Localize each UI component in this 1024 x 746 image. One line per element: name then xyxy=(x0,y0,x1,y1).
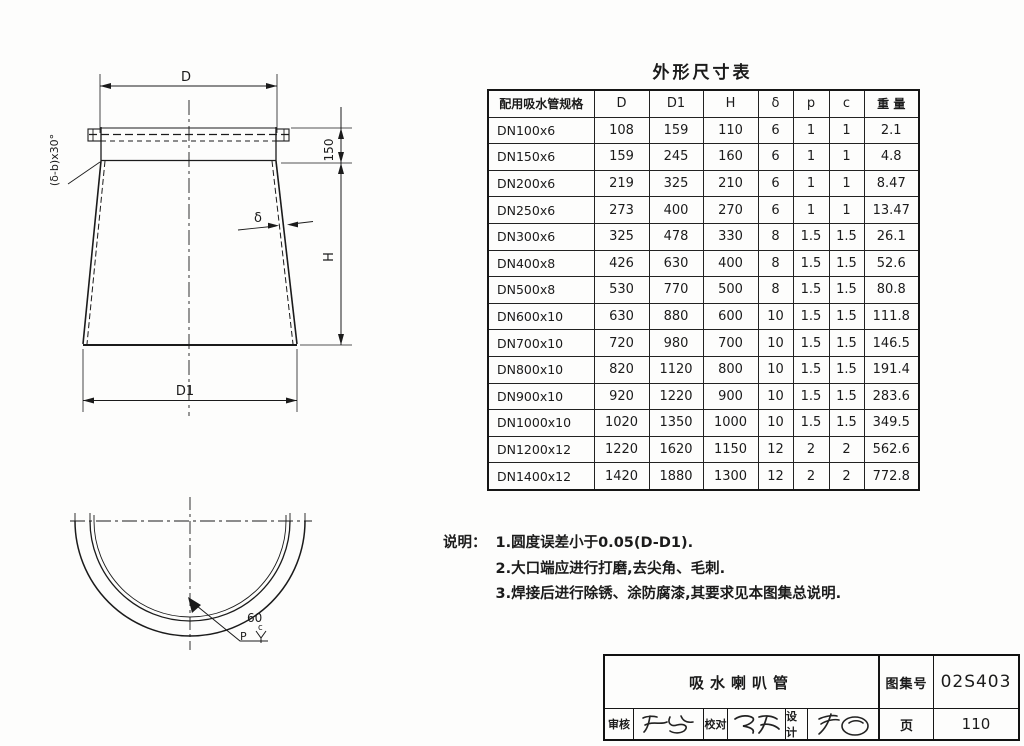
table-cell: 1.5 xyxy=(793,330,829,357)
table-cell: DN600x10 xyxy=(488,303,594,330)
table-cell: 880 xyxy=(649,303,703,330)
table-cell: 1.5 xyxy=(793,410,829,437)
table-cell: 1 xyxy=(793,117,829,144)
table-cell: 111.8 xyxy=(864,303,919,330)
table-cell: 325 xyxy=(594,223,649,250)
table-cell: 1150 xyxy=(703,436,758,463)
table-cell: 400 xyxy=(649,197,703,224)
table-row: DN1000x10102013501000101.51.5349.5 xyxy=(488,410,919,437)
table-cell: 13.47 xyxy=(864,197,919,224)
table-cell: 1 xyxy=(793,144,829,171)
table-cell: 2 xyxy=(793,463,829,490)
page-value: 110 xyxy=(934,709,1018,739)
table-cell: 10 xyxy=(758,303,793,330)
table-row: DN1400x121420188013001222772.8 xyxy=(488,463,919,490)
table-row: DN700x10720980700101.51.5146.5 xyxy=(488,330,919,357)
table-cell: 2 xyxy=(829,463,864,490)
designer-signature xyxy=(808,709,878,739)
title-block: 吸水喇叭管 图集号 02S403 审核 校对 设计 xyxy=(603,654,1020,741)
table-cell: 270 xyxy=(703,197,758,224)
table-cell: 159 xyxy=(649,117,703,144)
reviewer-signature xyxy=(634,709,704,739)
table-cell: 6 xyxy=(758,117,793,144)
table-row: DN100x61081591106112.1 xyxy=(488,117,919,144)
table-cell: 245 xyxy=(649,144,703,171)
table-cell: 8 xyxy=(758,250,793,277)
table-row: DN500x853077050081.51.580.8 xyxy=(488,277,919,304)
table-cell: 1.5 xyxy=(793,303,829,330)
signature-stroke xyxy=(811,711,875,738)
table-cell: DN100x6 xyxy=(488,117,594,144)
table-cell: 10 xyxy=(758,356,793,383)
table-cell: 1.5 xyxy=(829,277,864,304)
table-cell: DN300x6 xyxy=(488,223,594,250)
table-cell: DN1400x12 xyxy=(488,463,594,490)
table-cell: 1.5 xyxy=(829,410,864,437)
table-cell: 1.5 xyxy=(829,303,864,330)
table-cell: DN800x10 xyxy=(488,356,594,383)
table-cell: 273 xyxy=(594,197,649,224)
table-cell: 530 xyxy=(594,277,649,304)
table-cell: 1.5 xyxy=(793,277,829,304)
table-cell: 600 xyxy=(703,303,758,330)
table-cell: 110 xyxy=(703,117,758,144)
dimension-H-label: H xyxy=(322,252,337,262)
table-cell: DN500x8 xyxy=(488,277,594,304)
weld-p-label: P xyxy=(240,630,247,643)
bell-mouth-drawing: D (δ-b)x30° xyxy=(0,0,430,746)
table-cell: 330 xyxy=(703,223,758,250)
column-header-spec: 配用吸水管规格 xyxy=(488,90,594,117)
table-cell: 159 xyxy=(594,144,649,171)
table-cell: 1420 xyxy=(594,463,649,490)
table-cell: 1.5 xyxy=(793,356,829,383)
table-cell: DN1000x10 xyxy=(488,410,594,437)
table-cell: 1 xyxy=(829,144,864,171)
table-cell: 1880 xyxy=(649,463,703,490)
table-cell: 1.5 xyxy=(829,356,864,383)
table-cell: DN700x10 xyxy=(488,330,594,357)
table-cell: 108 xyxy=(594,117,649,144)
column-header-weight: 重 量 xyxy=(864,90,919,117)
note-item-2: 2.大口端应进行打磨,去尖角、毛刺. xyxy=(496,557,842,583)
table-cell: 52.6 xyxy=(864,250,919,277)
signature-stroke xyxy=(637,711,701,737)
page-label: 页 xyxy=(878,709,934,739)
collar-outline xyxy=(88,127,289,161)
column-header-D: D xyxy=(594,90,649,117)
table-cell: 1 xyxy=(793,170,829,197)
table-cell: 1350 xyxy=(649,410,703,437)
table-row: DN800x108201120800101.51.5191.4 xyxy=(488,356,919,383)
drawing-title: 吸水喇叭管 xyxy=(605,656,878,709)
table-cell: 770 xyxy=(649,277,703,304)
table-cell: 1.5 xyxy=(829,223,864,250)
dimension-D-label: D xyxy=(181,70,191,85)
column-header-c: c xyxy=(829,90,864,117)
table-row: DN1200x121220162011501222562.6 xyxy=(488,436,919,463)
table-cell: 1 xyxy=(829,117,864,144)
table-cell: 10 xyxy=(758,330,793,357)
table-cell: 562.6 xyxy=(864,436,919,463)
chamfer-label: (δ-b)x30° xyxy=(48,134,61,186)
table-cell: 1220 xyxy=(594,436,649,463)
table-cell: DN250x6 xyxy=(488,197,594,224)
table-row: DN300x632547833081.51.526.1 xyxy=(488,223,919,250)
table-cell: 8 xyxy=(758,277,793,304)
table-cell: 1020 xyxy=(594,410,649,437)
table-cell: 219 xyxy=(594,170,649,197)
table-cell: 146.5 xyxy=(864,330,919,357)
table-cell: 720 xyxy=(594,330,649,357)
table-cell: 1.5 xyxy=(829,383,864,410)
table-cell: DN900x10 xyxy=(488,383,594,410)
table-cell: 1 xyxy=(793,197,829,224)
table-cell: 630 xyxy=(594,303,649,330)
table-cell: 1.5 xyxy=(793,250,829,277)
table-cell: 772.8 xyxy=(864,463,919,490)
table-cell: DN200x6 xyxy=(488,170,594,197)
table-row: DN150x61592451606114.8 xyxy=(488,144,919,171)
table-row: DN400x842663040081.51.552.6 xyxy=(488,250,919,277)
table-cell: 800 xyxy=(703,356,758,383)
table-cell: 1000 xyxy=(703,410,758,437)
column-header-delta: δ xyxy=(758,90,793,117)
table-cell: 1 xyxy=(829,197,864,224)
table-cell: 900 xyxy=(703,383,758,410)
table-cell: 2.1 xyxy=(864,117,919,144)
table-cell: 426 xyxy=(594,250,649,277)
table-cell: 1.5 xyxy=(829,250,864,277)
table-cell: 4.8 xyxy=(864,144,919,171)
table-cell: 8 xyxy=(758,223,793,250)
table-cell: 630 xyxy=(649,250,703,277)
drawing-sheet: D (δ-b)x30° xyxy=(0,0,1024,746)
cone-outline xyxy=(83,161,297,345)
dimension-D1 xyxy=(83,349,297,412)
table-cell: 12 xyxy=(758,463,793,490)
dimension-D1-label: D1 xyxy=(176,384,194,399)
atlas-number-value: 02S403 xyxy=(934,656,1018,709)
table-cell: 6 xyxy=(758,170,793,197)
table-cell: 80.8 xyxy=(864,277,919,304)
dimension-delta-label: δ xyxy=(254,211,262,226)
table-cell: DN400x8 xyxy=(488,250,594,277)
table-row: DN600x10630880600101.51.5111.8 xyxy=(488,303,919,330)
review-label: 审核 xyxy=(605,709,634,739)
column-header-p: p xyxy=(793,90,829,117)
table-title: 外形尺寸表 xyxy=(487,58,918,83)
notes-label: 说明： xyxy=(443,531,487,608)
table-cell: 1 xyxy=(829,170,864,197)
table-cell: 10 xyxy=(758,383,793,410)
size-table: 配用吸水管规格 D D1 H δ p c 重 量 DN100x610815911… xyxy=(487,89,920,491)
table-cell: 6 xyxy=(758,197,793,224)
table-cell: 210 xyxy=(703,170,758,197)
column-header-H: H xyxy=(703,90,758,117)
table-cell: 400 xyxy=(703,250,758,277)
design-label: 设计 xyxy=(786,709,808,739)
table-cell: 1.5 xyxy=(793,223,829,250)
table-cell: 2 xyxy=(829,436,864,463)
table-cell: DN150x6 xyxy=(488,144,594,171)
table-row: DN250x627340027061113.47 xyxy=(488,197,919,224)
table-row: DN200x62193252106118.47 xyxy=(488,170,919,197)
table-cell: 820 xyxy=(594,356,649,383)
table-cell: 1620 xyxy=(649,436,703,463)
table-cell: 1300 xyxy=(703,463,758,490)
table-cell: 26.1 xyxy=(864,223,919,250)
table-cell: 478 xyxy=(649,223,703,250)
note-item-3: 3.焊接后进行除锈、涂防腐漆,其要求见本图集总说明. xyxy=(496,582,842,608)
table-cell: DN1200x12 xyxy=(488,436,594,463)
note-item-1: 1.圆度误差小于0.05(D-D1). xyxy=(496,531,842,557)
table-cell: 10 xyxy=(758,410,793,437)
checker-signature xyxy=(728,709,786,739)
table-cell: 1120 xyxy=(649,356,703,383)
size-table-header-row: 配用吸水管规格 D D1 H δ p c 重 量 xyxy=(488,90,919,117)
table-cell: 2 xyxy=(793,436,829,463)
table-cell: 349.5 xyxy=(864,410,919,437)
table-cell: 6 xyxy=(758,144,793,171)
dimension-150-label: 150 xyxy=(322,139,336,162)
table-cell: 325 xyxy=(649,170,703,197)
table-row: DN900x109201220900101.51.5283.6 xyxy=(488,383,919,410)
table-cell: 700 xyxy=(703,330,758,357)
signature-stroke xyxy=(731,711,783,737)
table-cell: 12 xyxy=(758,436,793,463)
table-cell: 1.5 xyxy=(793,383,829,410)
notes-list: 1.圆度误差小于0.05(D-D1). 2.大口端应进行打磨,去尖角、毛刺. 3… xyxy=(496,531,842,608)
notes-section: 说明： 1.圆度误差小于0.05(D-D1). 2.大口端应进行打磨,去尖角、毛… xyxy=(443,531,841,608)
table-cell: 191.4 xyxy=(864,356,919,383)
dimension-delta xyxy=(238,222,313,231)
table-cell: 500 xyxy=(703,277,758,304)
column-header-D1: D1 xyxy=(649,90,703,117)
table-cell: 8.47 xyxy=(864,170,919,197)
table-cell: 980 xyxy=(649,330,703,357)
atlas-number-label: 图集号 xyxy=(878,656,934,709)
table-cell: 283.6 xyxy=(864,383,919,410)
table-cell: 1220 xyxy=(649,383,703,410)
weld-c-label: c xyxy=(258,623,263,633)
chamfer-leader xyxy=(68,162,100,184)
size-table-body: DN100x61081591106112.1DN150x615924516061… xyxy=(488,117,919,490)
table-cell: 160 xyxy=(703,144,758,171)
table-cell: 1.5 xyxy=(829,330,864,357)
check-label: 校对 xyxy=(704,709,728,739)
table-cell: 920 xyxy=(594,383,649,410)
